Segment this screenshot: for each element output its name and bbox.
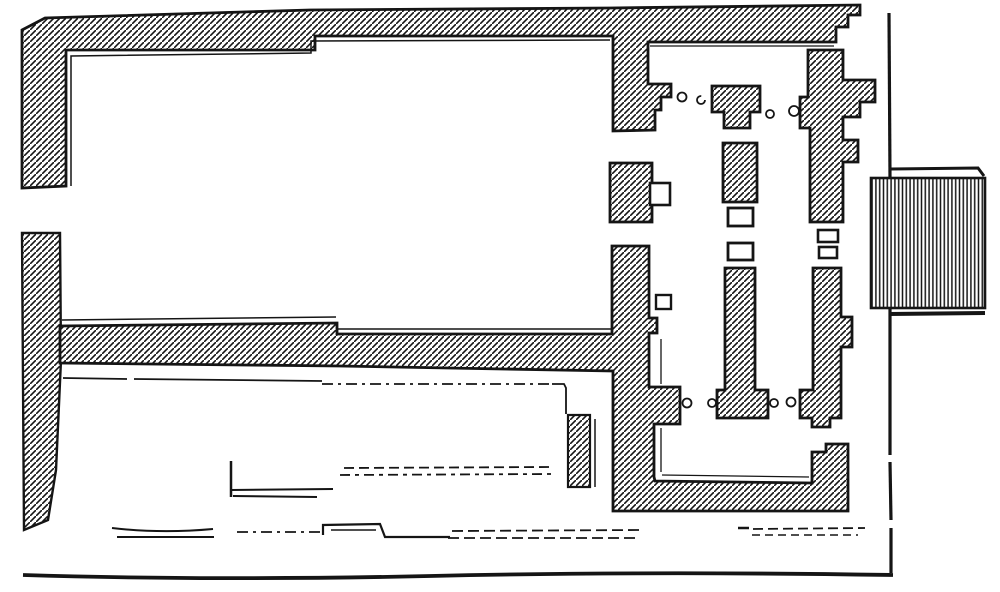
column-base (770, 399, 778, 407)
annex-connector-bottom (889, 313, 985, 314)
column-base (683, 399, 692, 408)
central-square-lower (728, 243, 753, 260)
ruin-L-horizontal-b (233, 496, 317, 497)
column-base (678, 93, 687, 102)
striped-platform-annex (871, 178, 985, 308)
site-plan-svg (0, 0, 1000, 592)
column-base (787, 398, 796, 407)
east-square-upper (818, 230, 838, 242)
site-plan-figure (0, 0, 1000, 592)
east-boundary-1 (889, 13, 890, 178)
column-base (789, 106, 799, 116)
east-boundary-3 (890, 462, 891, 520)
small-square-west-wall (656, 295, 671, 309)
annex-square-west-block (650, 183, 670, 205)
column-base (708, 399, 716, 407)
column-base-broken (697, 96, 705, 104)
central-mid-pedestal (723, 143, 757, 202)
south-enclosure-top-line-a (63, 378, 127, 379)
column-base (766, 110, 774, 118)
east-square-lower (819, 247, 837, 258)
ruin-L-horizontal-a (231, 489, 333, 490)
south-court-wall-strip (568, 415, 590, 487)
court-west-block (610, 163, 652, 222)
central-square-upper (728, 208, 753, 226)
